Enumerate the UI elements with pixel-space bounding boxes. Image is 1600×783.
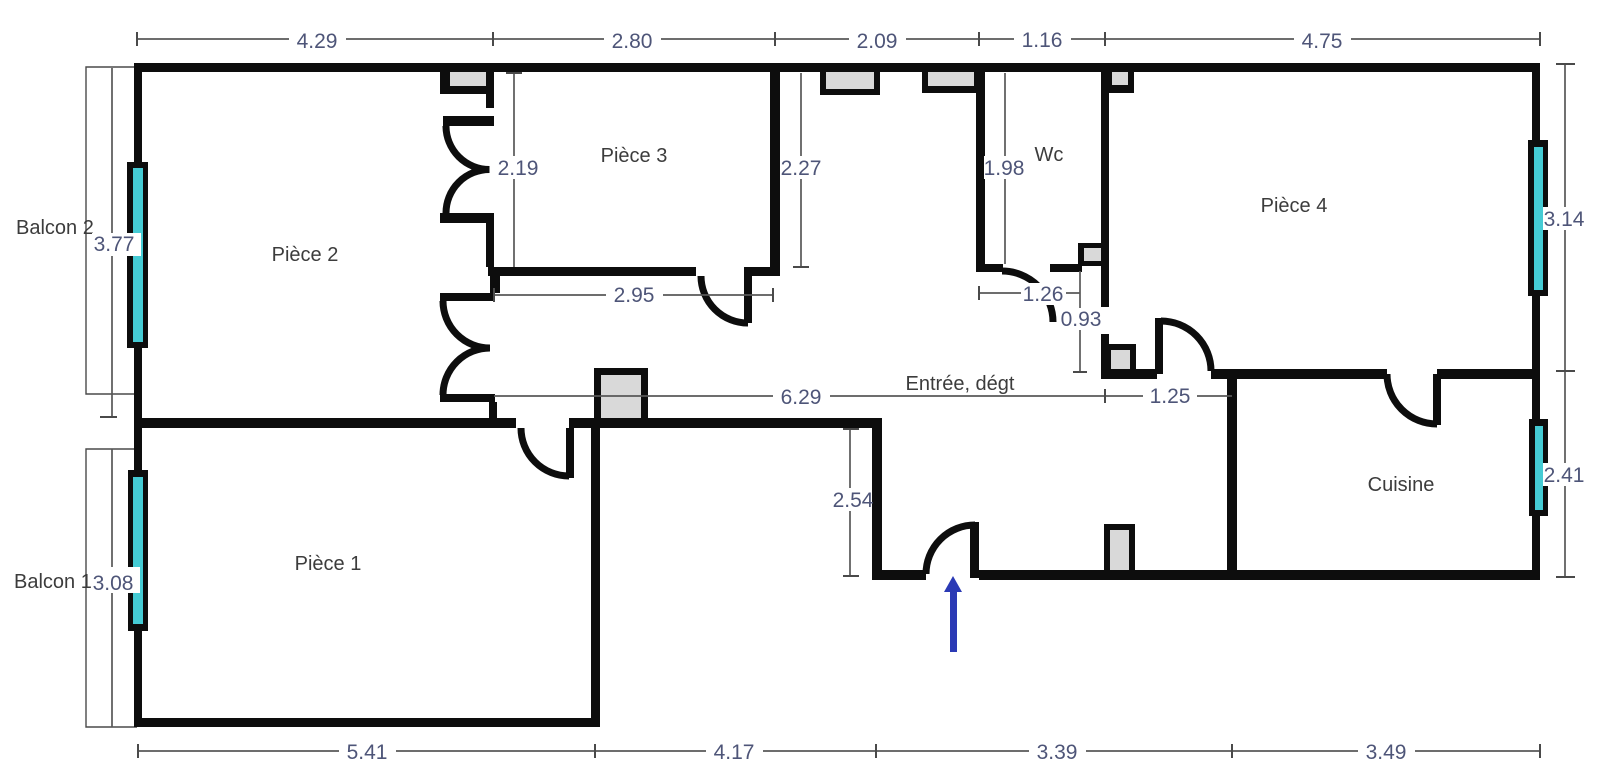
svg-text:6.29: 6.29 [781, 386, 822, 409]
svg-text:3.08: 3.08 [93, 572, 134, 595]
svg-text:Pièce 1: Pièce 1 [295, 553, 362, 575]
svg-text:3.49: 3.49 [1366, 741, 1407, 764]
svg-text:Cuisine: Cuisine [1368, 474, 1435, 496]
svg-text:4.17: 4.17 [714, 741, 755, 764]
svg-text:1.98: 1.98 [984, 157, 1025, 180]
svg-text:3.14: 3.14 [1544, 208, 1585, 231]
svg-text:2.27: 2.27 [781, 157, 822, 180]
svg-text:Balcon 2: Balcon 2 [16, 217, 94, 239]
svg-text:1.26: 1.26 [1023, 283, 1064, 306]
svg-text:2.19: 2.19 [498, 157, 539, 180]
svg-text:2.80: 2.80 [612, 30, 653, 53]
svg-text:3.77: 3.77 [94, 233, 135, 256]
svg-text:Entrée, dégt: Entrée, dégt [906, 373, 1015, 395]
svg-text:2.95: 2.95 [614, 284, 655, 307]
svg-text:5.41: 5.41 [347, 741, 388, 764]
svg-text:Balcon 1: Balcon 1 [14, 571, 92, 593]
svg-text:Pièce 4: Pièce 4 [1261, 195, 1328, 217]
svg-text:Pièce 3: Pièce 3 [601, 145, 668, 167]
svg-text:0.93: 0.93 [1061, 308, 1102, 331]
svg-text:4.75: 4.75 [1302, 30, 1343, 53]
svg-text:1.25: 1.25 [1150, 385, 1191, 408]
svg-text:Wc: Wc [1035, 144, 1064, 166]
svg-text:Pièce 2: Pièce 2 [272, 244, 339, 266]
svg-text:2.54: 2.54 [833, 489, 874, 512]
svg-text:1.16: 1.16 [1022, 29, 1063, 52]
svg-text:4.29: 4.29 [297, 30, 338, 53]
svg-text:2.41: 2.41 [1544, 464, 1585, 487]
svg-text:3.39: 3.39 [1037, 741, 1078, 764]
svg-text:2.09: 2.09 [857, 30, 898, 53]
